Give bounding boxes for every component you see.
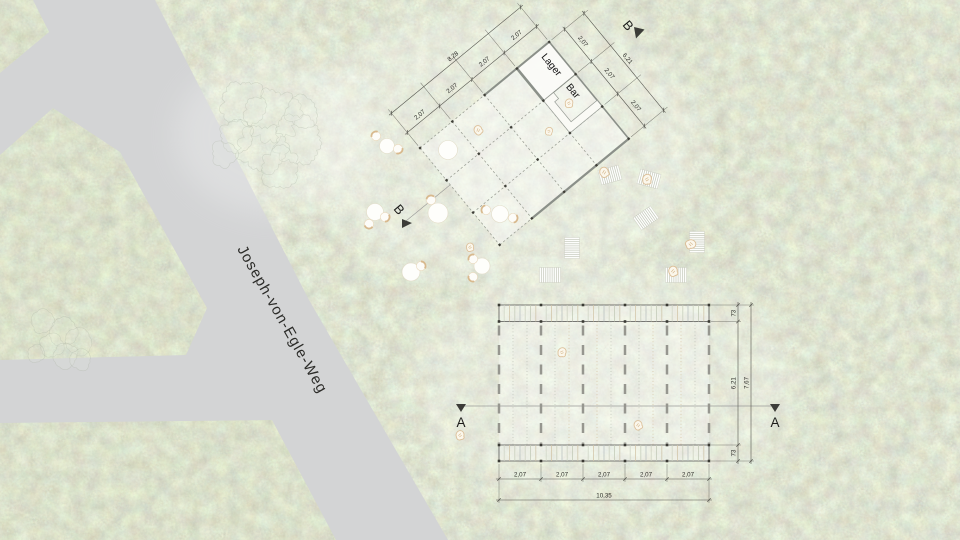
svg-text:73: 73 [731,449,738,456]
svg-text:2,07: 2,07 [640,472,653,479]
svg-text:6,21: 6,21 [731,377,738,390]
svg-text:A: A [770,415,779,430]
svg-text:2,07: 2,07 [556,472,569,479]
svg-text:2,07: 2,07 [682,472,695,479]
svg-text:7,67: 7,67 [744,376,751,389]
svg-text:2,07: 2,07 [598,472,611,479]
svg-text:2,07: 2,07 [514,472,527,479]
svg-text:73: 73 [731,309,738,316]
svg-text:10,35: 10,35 [596,493,612,500]
svg-text:A: A [456,415,465,430]
